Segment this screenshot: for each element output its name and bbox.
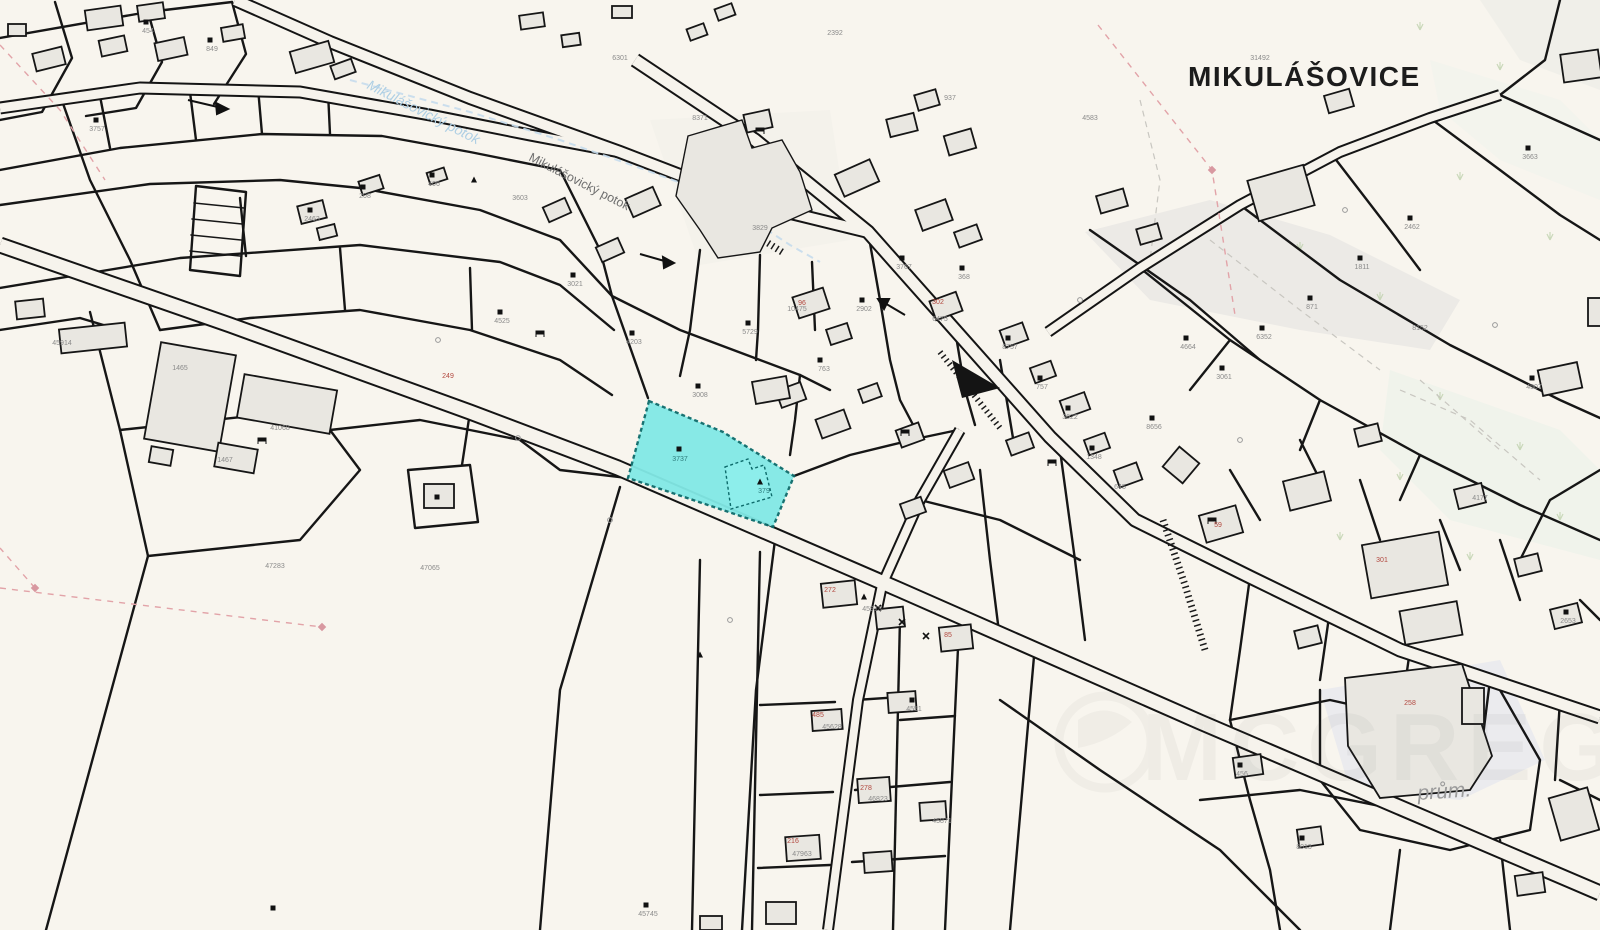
parcel-number: 41068	[270, 425, 290, 432]
parcel-number: 8013	[1296, 844, 1312, 851]
landuse-square-icon	[1150, 416, 1155, 421]
parcel-number: 59	[1214, 522, 1222, 529]
parcel-number: 3829	[752, 225, 768, 232]
parcel-number: 1467	[217, 457, 233, 464]
landuse-square-icon	[435, 495, 440, 500]
parcel-number: 278	[860, 785, 872, 792]
parcel-number: 4664	[1180, 344, 1196, 351]
parcel-number: 47283	[265, 563, 285, 570]
parcel-number: 2462	[1404, 224, 1420, 231]
parcel-number: 4525	[494, 318, 510, 325]
parcel-number: 6352	[1256, 334, 1272, 341]
parcel-number: 208	[359, 193, 371, 200]
parcel-number: 8371	[692, 115, 708, 122]
landuse-square-icon	[94, 118, 99, 123]
cadastral-map-canvas[interactable]: 3757454849246320840645253021420330085729…	[0, 0, 1600, 930]
parcel-number: 301	[1376, 557, 1388, 564]
landuse-square-icon	[361, 185, 366, 190]
landuse-square-icon	[677, 447, 682, 452]
parcel-number: 10475	[787, 306, 807, 313]
landuse-square-icon	[960, 266, 965, 271]
parcel-number: 45628	[822, 724, 842, 731]
parcel-number: 8656	[1146, 424, 1162, 431]
landuse-square-icon	[1308, 296, 1313, 301]
parcel-number: 871	[1306, 304, 1318, 311]
parcel-number: 2463	[304, 216, 320, 223]
parcel-number: 763	[818, 366, 830, 373]
parcel-number: 4177	[1472, 495, 1488, 502]
parcel-number: 5729	[742, 329, 758, 336]
svg-text:MCGREGOR: MCGREGOR	[1142, 694, 1600, 801]
parcel-number: 3008	[692, 392, 708, 399]
landuse-square-icon	[571, 273, 576, 278]
landuse-square-icon	[900, 256, 905, 261]
landuse-square-icon	[271, 906, 276, 911]
landuse-square-icon	[630, 331, 635, 336]
landuse-square-icon	[208, 38, 213, 43]
parcel-number: 45913	[862, 606, 882, 613]
parcel-number: 216	[787, 838, 799, 845]
parcel-number: 2902	[856, 306, 872, 313]
parcel-number: 2653	[1560, 618, 1576, 625]
parcel-number: 3663	[1522, 154, 1538, 161]
landuse-square-icon	[1530, 376, 1535, 381]
landuse-square-icon	[1564, 610, 1569, 615]
parcel-number: 6301	[612, 55, 628, 62]
landuse-square-icon	[644, 903, 649, 908]
parcel-number: 45871	[932, 818, 952, 825]
place-label: MIKULÁŠOVICE	[1188, 60, 1421, 92]
landuse-square-icon	[1358, 256, 1363, 261]
parcel-number: 4507	[1526, 384, 1542, 391]
parcel-number: 3767	[896, 264, 912, 271]
parcel-number: 3737	[672, 456, 688, 463]
parcel-number: 3622	[1062, 414, 1078, 421]
landuse-square-icon	[1006, 336, 1011, 341]
landuse-square-icon	[144, 20, 149, 25]
landuse-square-icon	[746, 321, 751, 326]
landuse-square-icon	[860, 298, 865, 303]
parcel-number: 45914	[52, 340, 72, 347]
parcel-number: 757	[1036, 384, 1048, 391]
landuse-square-icon	[1526, 146, 1531, 151]
parcel-number: 6475	[932, 316, 948, 323]
landuse-square-icon	[498, 310, 503, 315]
landuse-square-icon	[1038, 376, 1043, 381]
parcel-number: 85	[944, 632, 952, 639]
parcel-number: 47963	[792, 851, 812, 858]
parcel-number: 302	[932, 299, 944, 306]
parcel-number: 849	[206, 46, 218, 53]
parcel-number: 45745	[638, 911, 658, 918]
landuse-square-icon	[818, 358, 823, 363]
parcel-number: 1465	[172, 365, 188, 372]
landuse-square-icon	[1260, 326, 1265, 331]
parcel-number: 3757	[89, 126, 105, 133]
parcel-number: 368	[958, 274, 970, 281]
parcel-number: 96	[798, 300, 806, 307]
parcel-number: 4583	[1082, 115, 1098, 122]
parcel-number: 485	[812, 712, 824, 719]
parcel-number: 249	[442, 373, 454, 380]
map-svg: 3757454849246320840645253021420330085729…	[0, 0, 1600, 930]
parcel-number: 272	[824, 587, 836, 594]
parcel-number: 4551	[906, 706, 922, 713]
parcel-number: 46823	[868, 796, 888, 803]
landuse-square-icon	[696, 384, 701, 389]
parcel-number: 4203	[626, 339, 642, 346]
parcel-number: 2392	[827, 30, 843, 37]
landuse-square-icon	[430, 173, 435, 178]
parcel-number: 645	[1114, 484, 1126, 491]
landuse-square-icon	[1184, 336, 1189, 341]
parcel-number: 8152	[1412, 325, 1428, 332]
parcel-number: 3021	[567, 281, 583, 288]
landuse-square-icon	[1220, 366, 1225, 371]
landuse-square-icon	[1066, 406, 1071, 411]
landuse-square-icon	[1408, 216, 1413, 221]
landuse-square-icon	[1090, 446, 1095, 451]
parcel-number: 3603	[512, 195, 528, 202]
parcel-number: 8757	[1002, 344, 1018, 351]
parcel-number: 3061	[1216, 374, 1232, 381]
landuse-square-icon	[910, 698, 915, 703]
parcel-number: 454	[142, 28, 154, 35]
parcel-number: 379	[758, 488, 770, 495]
parcel-number: 47065	[420, 565, 440, 572]
parcel-number: 1811	[1354, 264, 1369, 271]
landuse-square-icon	[1300, 836, 1305, 841]
landuse-square-icon	[308, 208, 313, 213]
parcel-number: 1348	[1086, 454, 1102, 461]
parcel-number: 937	[944, 95, 956, 102]
parcel-number: 406	[428, 181, 440, 188]
